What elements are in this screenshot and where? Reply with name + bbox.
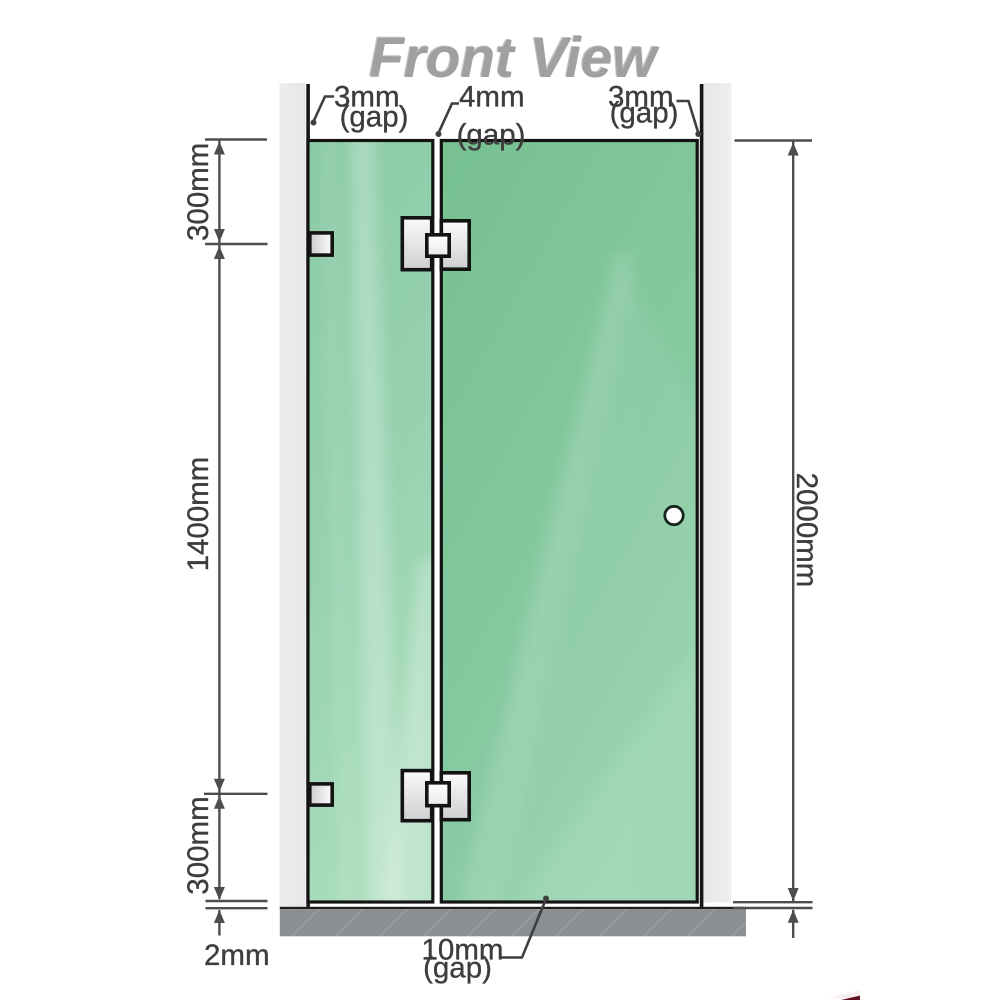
svg-text:300mm: 300mm — [182, 143, 215, 241]
svg-text:(gap): (gap) — [457, 119, 526, 152]
svg-text:(gap): (gap) — [610, 97, 679, 130]
svg-text:4mm: 4mm — [459, 81, 525, 114]
svg-text:300mm: 300mm — [182, 796, 215, 894]
svg-text:(gap): (gap) — [340, 101, 409, 134]
svg-text:2mm: 2mm — [204, 939, 270, 972]
svg-text:2000mm: 2000mm — [790, 473, 823, 588]
svg-text:1400mm: 1400mm — [182, 457, 215, 572]
svg-text:(gap): (gap) — [423, 952, 492, 985]
